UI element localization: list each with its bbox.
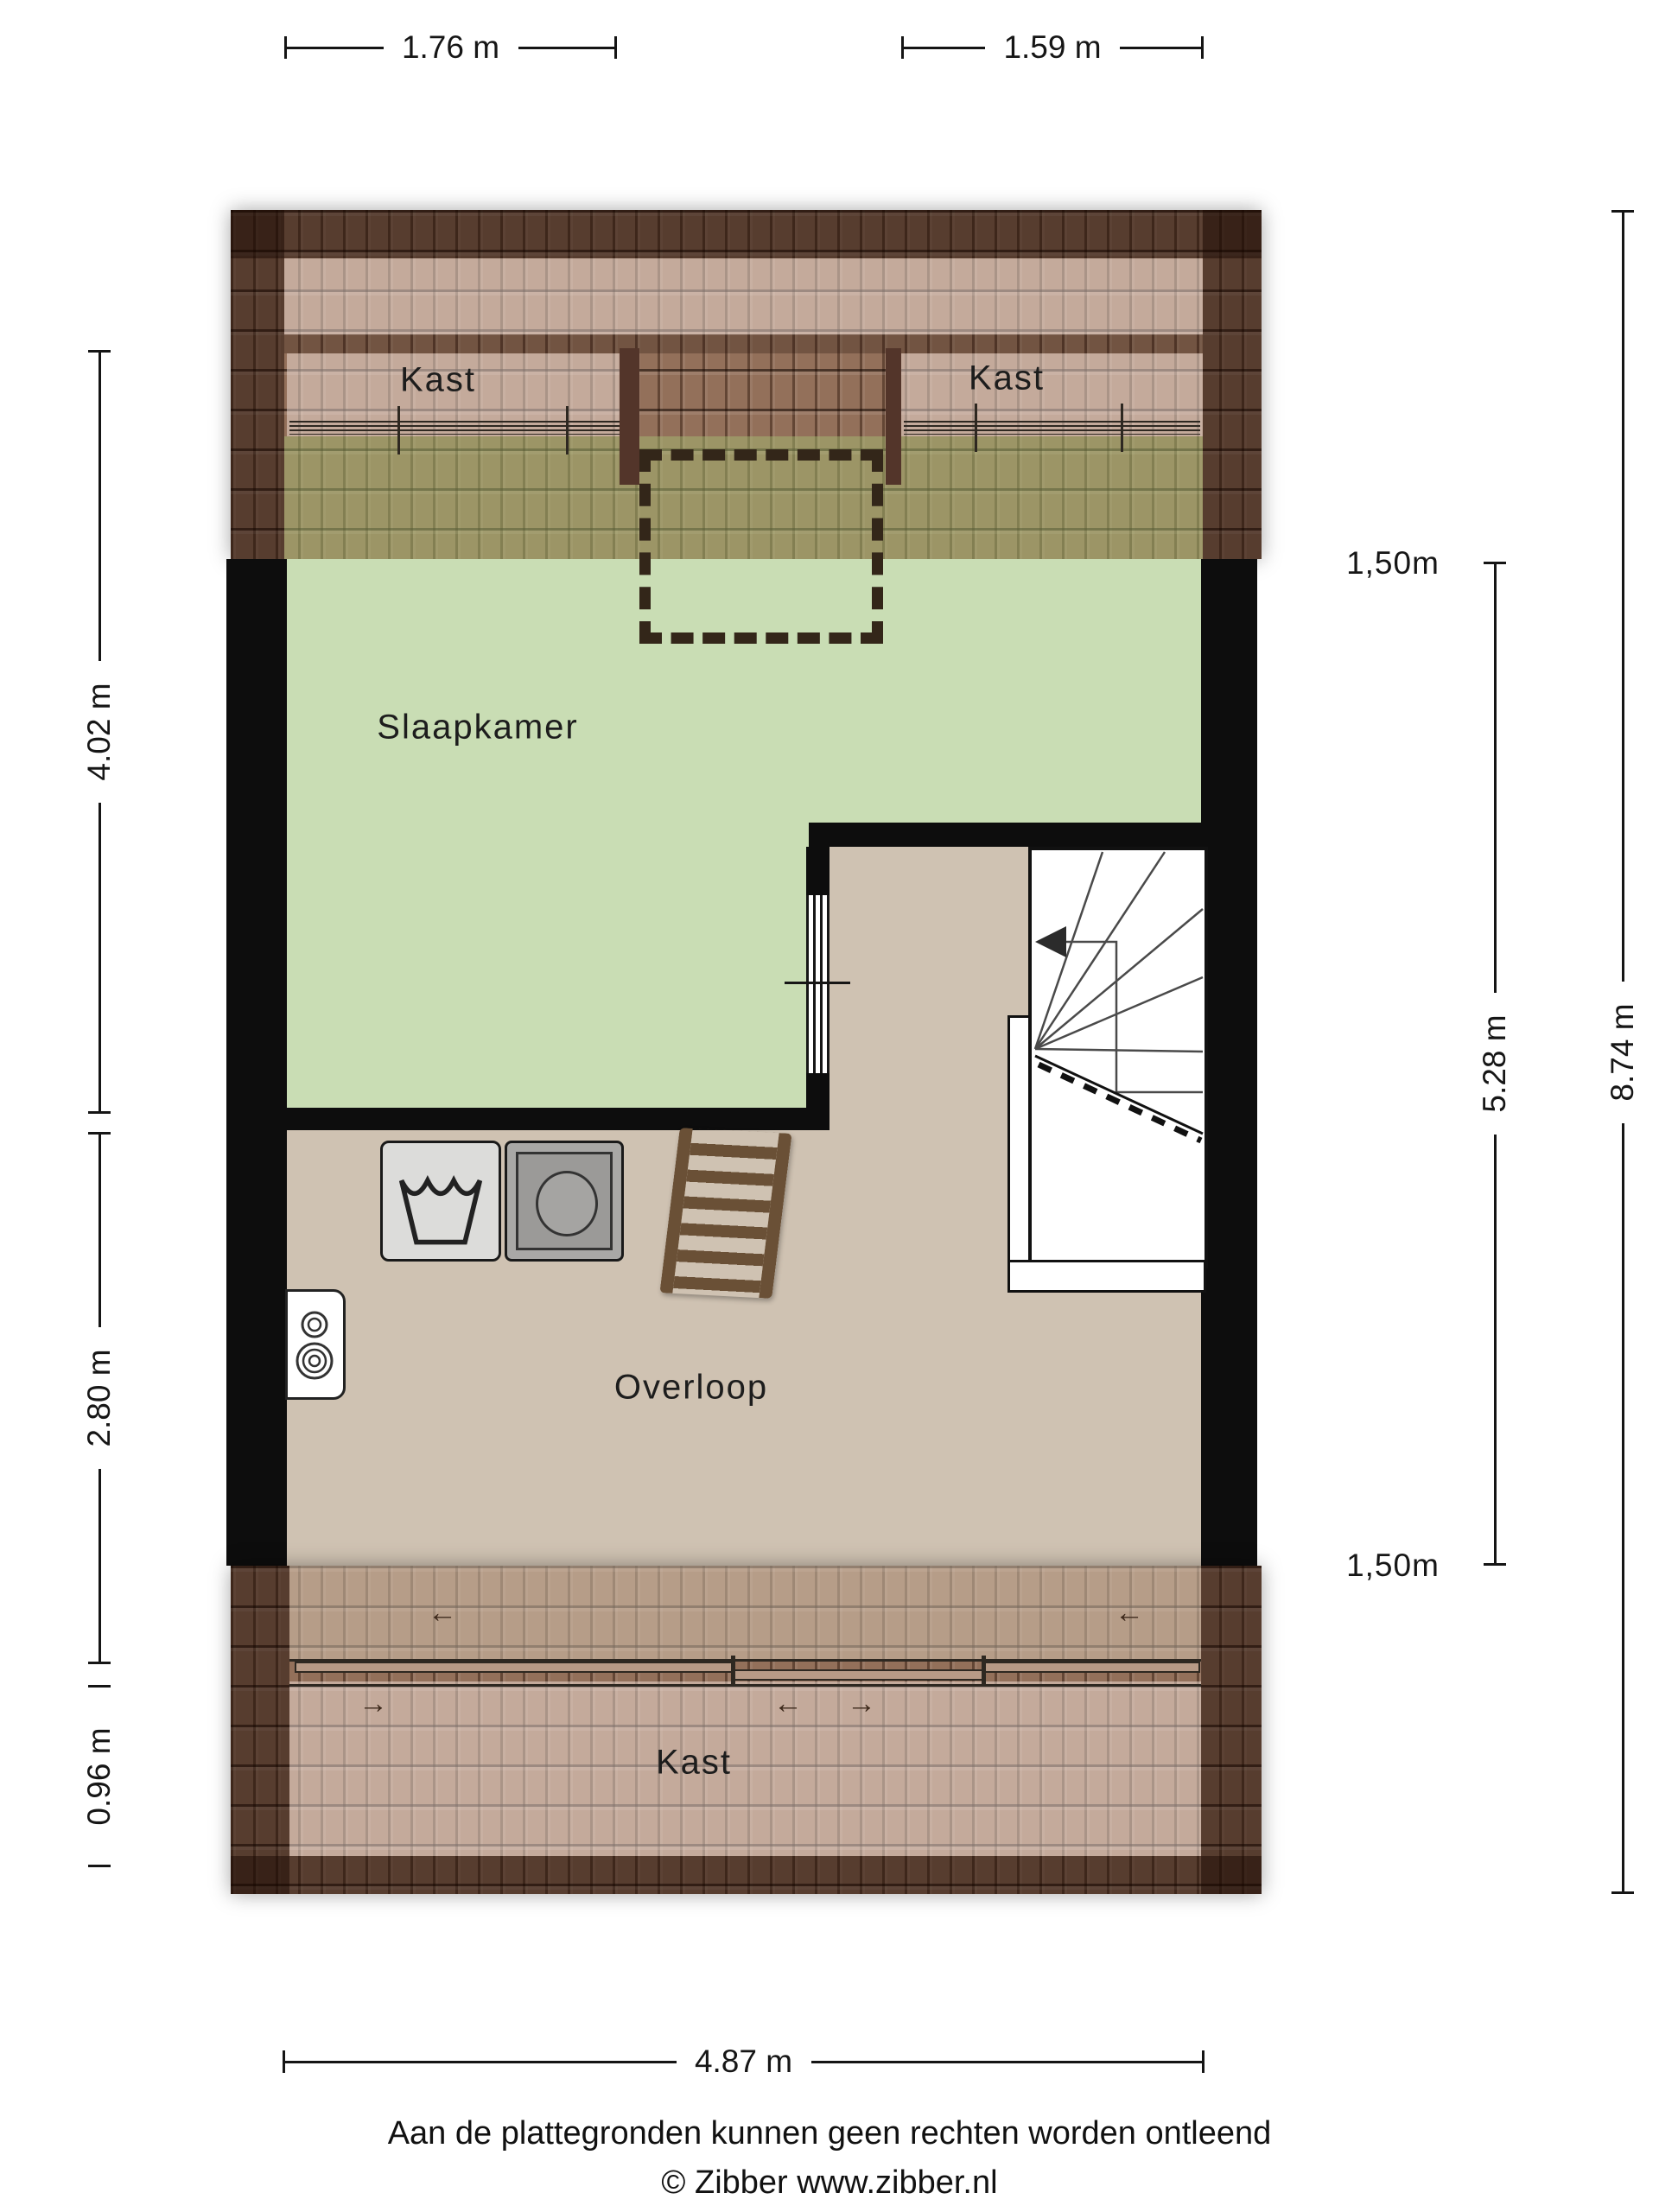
dryer-drum-icon	[536, 1171, 598, 1236]
roof-dark-row	[284, 334, 1203, 353]
roof-band-bottom: ← ← → ← →	[231, 1566, 1262, 1894]
stair-landing	[1007, 1260, 1206, 1293]
roof-eave-bottom	[231, 1856, 1262, 1894]
closet-door-panel	[295, 1662, 734, 1673]
boiler-pipes-icon	[288, 1292, 343, 1397]
room-label-kast-top-right: Kast	[969, 359, 1045, 398]
room-label-kast-top-left: Kast	[400, 361, 476, 400]
roof-eave-right-b	[1201, 1566, 1262, 1894]
roof-eave-left	[231, 210, 284, 559]
loft-ladder-icon	[659, 1128, 791, 1299]
dormer-wall-right	[886, 348, 901, 485]
slope-tint-landing	[289, 1566, 1201, 1659]
bedroom-floor-lower	[287, 823, 809, 1108]
headroom-label-top: 1,50m	[1346, 545, 1440, 582]
roof-highlight-strip	[284, 258, 1203, 334]
dimension-right-total: 8.74 m	[1605, 210, 1640, 1894]
wall-bedroom-south-left	[287, 1108, 827, 1130]
headroom-label-bottom: 1,50m	[1346, 1548, 1440, 1584]
dormer-outline	[639, 449, 883, 644]
washing-machine-icon	[380, 1141, 501, 1262]
dimension-left-upper: 4.02 m	[82, 350, 117, 1114]
roof-eave-right	[1203, 210, 1262, 559]
arrow-left-icon: ←	[1115, 1597, 1144, 1630]
closet-track-post	[731, 1656, 735, 1685]
dimension-top-right: 1.59 m	[901, 35, 1204, 60]
room-label-overloop: Overloop	[614, 1369, 768, 1408]
arrow-left-icon: ←	[428, 1597, 457, 1630]
footer-copyright: © Zibber www.zibber.nl	[0, 2164, 1659, 2202]
bedroom-door	[806, 895, 829, 1073]
kneewall-window-tick	[566, 406, 569, 454]
wall-left	[226, 559, 287, 1566]
dimension-left-lower: 0.96 m	[82, 1685, 117, 1867]
closet-door-panel	[734, 1669, 984, 1681]
closet-door-panel	[984, 1662, 1200, 1673]
arrow-right-icon: →	[847, 1688, 876, 1721]
dimension-top-left: 1.76 m	[284, 35, 617, 60]
staircase	[1028, 847, 1208, 1268]
bedroom-door-tick	[785, 982, 850, 984]
room-label-kast-bottom: Kast	[656, 1744, 732, 1783]
closet-zone-bottom	[289, 1681, 1201, 1856]
room-label-slaapkamer: Slaapkamer	[377, 709, 578, 747]
stair-direction-arrow-icon	[1035, 926, 1066, 957]
wall-door-upper	[806, 847, 829, 897]
dormer-wall-left	[620, 348, 639, 485]
footer-disclaimer: Aan de plattegronden kunnen geen rechten…	[0, 2115, 1659, 2152]
boiler-icon	[285, 1289, 346, 1400]
kneewall-window-tick	[397, 406, 400, 454]
floorplan-page: ← ← → ← → Kast Kast Slaapkamer Overloop …	[0, 0, 1659, 2212]
tumble-dryer-icon	[505, 1141, 624, 1262]
kneewall-window-tick	[975, 404, 977, 452]
wash-symbol-icon	[383, 1143, 499, 1259]
staircase-treads	[1032, 850, 1205, 1265]
roof-eave-left-b	[231, 1566, 289, 1894]
closet-track-post	[982, 1656, 986, 1685]
dimension-left-middle: 2.80 m	[82, 1132, 117, 1664]
dimension-bottom: 4.87 m	[283, 2049, 1205, 2075]
kneewall-window-right	[904, 421, 1200, 435]
roof-eave-top	[231, 210, 1262, 258]
wall-bedroom-south-right	[809, 823, 1201, 847]
kneewall-window-left	[289, 421, 620, 435]
arrow-left-icon: ←	[773, 1688, 803, 1721]
dimension-right-span: 5.28 m	[1478, 562, 1512, 1566]
arrow-right-icon: →	[359, 1688, 388, 1721]
wall-right	[1201, 559, 1257, 1566]
kneewall-window-tick	[1121, 404, 1123, 452]
